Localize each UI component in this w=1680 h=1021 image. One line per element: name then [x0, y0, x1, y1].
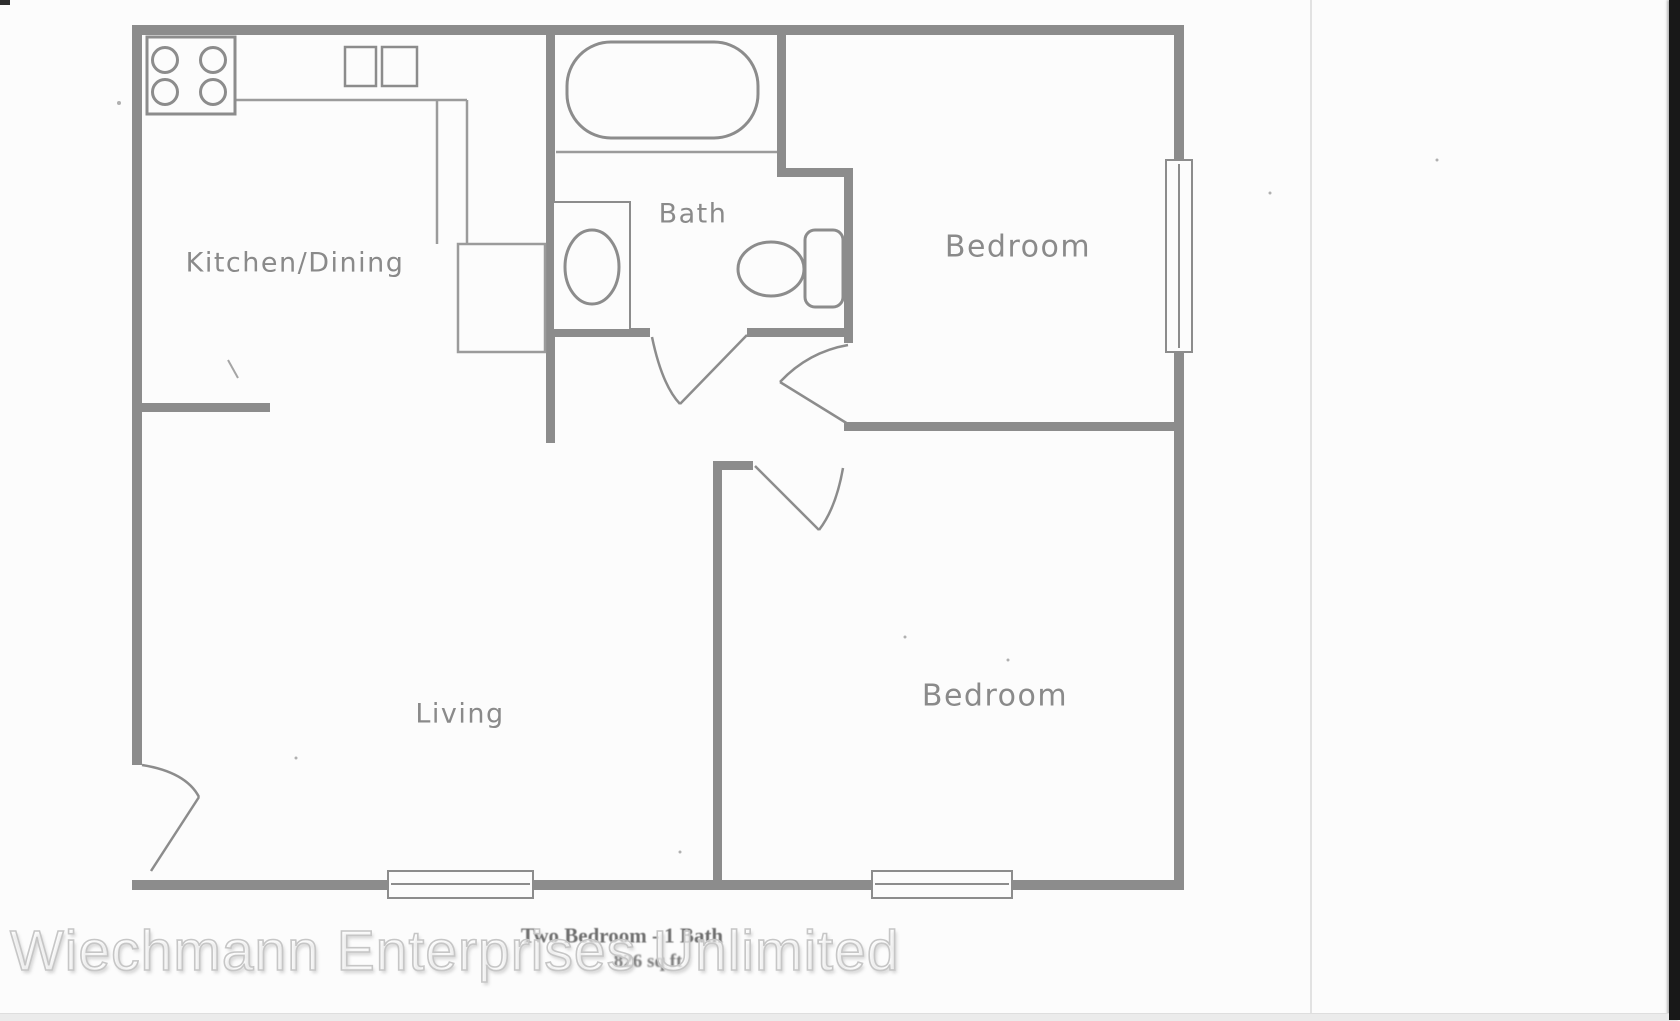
page-edge-line [1310, 0, 1312, 1020]
bathroom-sink-icon [553, 202, 630, 330]
bathtub-icon [567, 42, 758, 138]
wall-left [132, 25, 142, 765]
stove-icon [147, 37, 235, 114]
window-bottom-right [872, 871, 1012, 898]
scan-edge-strip [1669, 0, 1680, 1020]
scanned-floorplan-page: Kitchen/Dining Bath Bedroom Living Bedro… [0, 0, 1680, 1020]
interior-walls [132, 25, 1184, 890]
wall-bottom [132, 880, 1184, 890]
pantry-box [458, 244, 545, 352]
bedroom-top-door [780, 345, 848, 424]
wall-right [1174, 25, 1184, 890]
wall-bedroom2-left [713, 461, 722, 890]
window-right [1166, 160, 1192, 352]
bedroom-bottom-door [755, 466, 843, 530]
watermark-text: Wiechmann Enterprises Unlimited [10, 918, 1010, 984]
doors [142, 335, 848, 871]
wall-bath-bedroom [844, 177, 853, 343]
room-label-bedroom-top: Bedroom [945, 230, 1091, 265]
wall-tub-bedroom [777, 25, 786, 177]
kitchen-sink-icon [345, 47, 417, 86]
outer-walls [132, 25, 1184, 890]
window-bottom-left [388, 871, 533, 898]
room-label-bath: Bath [659, 199, 728, 230]
room-label-living: Living [415, 699, 504, 730]
scan-corner-mark [0, 0, 10, 5]
scan-speckles [117, 101, 1439, 854]
wall-bedroom2-stub [713, 461, 753, 470]
wall-bath-stub-right [747, 328, 853, 337]
room-label-kitchen-dining: Kitchen/Dining [186, 248, 405, 279]
wall-top [132, 25, 1184, 35]
floorplan-linework [0, 0, 1680, 1020]
wall-bedroom1-bottom [844, 422, 1184, 431]
wall-kitchen-living-stub [132, 403, 270, 412]
entry-door [142, 765, 199, 871]
wall-bath-jog [777, 168, 853, 177]
bath-door [652, 335, 747, 404]
room-label-bedroom-bottom: Bedroom [922, 679, 1068, 714]
toilet-icon [738, 230, 843, 307]
